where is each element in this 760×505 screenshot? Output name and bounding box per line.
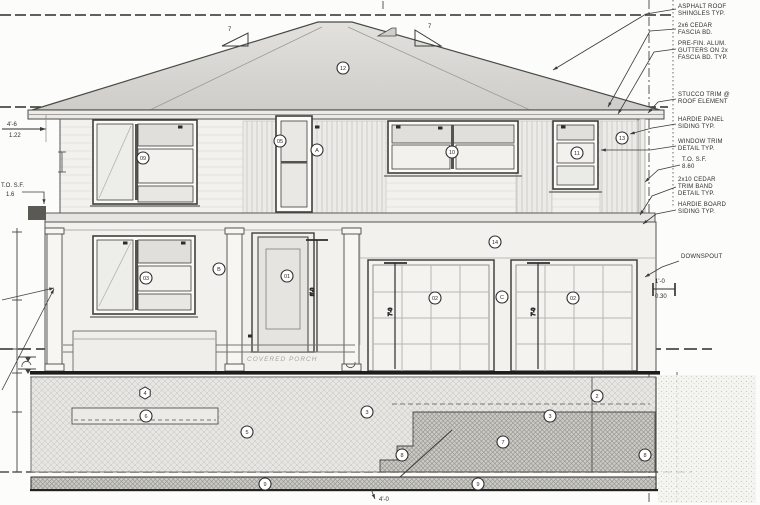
callout-bubble: B	[213, 263, 225, 275]
pane-marker-icon	[438, 127, 443, 130]
garage-dim-label: 7'-0	[531, 308, 537, 316]
callout-label: 09	[140, 156, 146, 162]
earth-hatch	[658, 375, 756, 503]
right-dim-ft: 1'-0	[655, 279, 665, 285]
annotation-note: T.O. S.F.8.60	[682, 157, 707, 170]
annotation-note: STUCCO TRIM @ROOF ELEMENT	[678, 92, 730, 105]
callout-label: B	[217, 267, 221, 273]
callout-label: 12	[340, 66, 346, 72]
callout-label: 14	[492, 240, 498, 246]
overhang-dim-m: 1.22	[9, 133, 21, 139]
callout-bubble: 02	[429, 292, 441, 304]
foundation	[30, 375, 756, 503]
callout-label: 02	[570, 296, 576, 302]
porch-column	[344, 228, 359, 371]
callout-bubble: 05	[274, 135, 286, 147]
bottom-dim-label: 4'-0	[379, 497, 389, 503]
callout-label: 01	[284, 274, 290, 280]
callout-bubble: 14	[489, 236, 501, 248]
callout-bubble: 8	[639, 449, 651, 461]
callout-label: 11	[574, 151, 580, 157]
callout-bubble: 4	[140, 387, 150, 399]
callout-label: 9	[263, 482, 266, 488]
callout-bubble: 03	[140, 272, 152, 284]
callout-bubble: C	[496, 291, 508, 303]
pane-marker-icon	[181, 242, 186, 245]
callout-bubble: 11	[571, 147, 583, 159]
pane-marker-icon	[178, 126, 183, 129]
callout-label: 10	[449, 150, 455, 156]
callout-label: 05	[277, 139, 283, 145]
annotation-note: PRE-FIN. ALUM.GUTTERS ON 2xFASCIA BD. TY…	[678, 41, 728, 61]
window-upper-center	[276, 116, 312, 212]
callout-bubble: 2	[591, 390, 603, 402]
callout-label: 4	[143, 391, 146, 397]
callout-bubble: 8	[396, 449, 408, 461]
overhang-dim-ft: 4'-6	[7, 122, 17, 128]
annotation-note: DOWNSPOUT	[681, 254, 723, 260]
callout-label: 5	[245, 430, 248, 436]
slope-indicator-left-icon	[222, 33, 248, 46]
callout-label: 13	[619, 136, 625, 142]
annotation-note: 2x6 CEDARFASCIA BD.	[678, 23, 713, 36]
left-note-line1: T.O. S.F.	[1, 183, 24, 189]
callout-bubble: 3	[544, 410, 556, 422]
note-leader	[608, 29, 676, 107]
annotation-note: HARDIE BOARDSIDING TYP.	[678, 202, 727, 215]
footing-bottom-line	[30, 489, 658, 491]
siding-panel	[312, 121, 386, 213]
callout-bubble: A	[311, 144, 323, 156]
elevation-sheet: 7 7	[0, 0, 760, 505]
garage-door-right	[511, 260, 637, 371]
left-level-note: T.O. S.F. 1.6	[1, 183, 46, 220]
elevation-drawing: 7 7	[0, 0, 760, 505]
break-curl-icon	[22, 361, 31, 367]
callout-bubble: 10	[446, 146, 458, 158]
entry-door-dim-label: 8'-0	[310, 288, 316, 296]
pane-marker-icon	[248, 335, 253, 338]
slope-label-left: 7	[228, 27, 232, 33]
garage-dim-label: 7'-0	[388, 308, 394, 316]
siding-panel	[243, 121, 276, 213]
callout-bubble: 12	[337, 62, 349, 74]
pane-marker-icon	[396, 126, 401, 129]
callout-label: C	[500, 295, 504, 301]
callout-label: 3	[365, 410, 368, 416]
entry-door	[250, 233, 316, 352]
siding-panel	[516, 121, 552, 213]
right-dim-m: 0.30	[655, 294, 667, 300]
porch-label: COVERED PORCH	[247, 356, 317, 363]
callout-label: 3	[548, 414, 551, 420]
porch-column	[227, 228, 242, 371]
callout-bubble: 09	[137, 152, 149, 164]
annotation-note: WINDOW TRIMDETAIL TYP.	[678, 139, 723, 152]
callout-label: 03	[143, 276, 149, 282]
callout-bubble: 9	[472, 478, 484, 490]
callout-label: 9	[476, 482, 479, 488]
callout-label: 2	[595, 394, 598, 400]
floor-trim-band	[45, 213, 655, 222]
pane-marker-icon	[561, 126, 566, 129]
note-leader	[553, 9, 676, 70]
left-note-line2: 1.6	[6, 192, 15, 198]
callout-label: 8	[400, 453, 403, 459]
slope-label-right: 7	[428, 24, 432, 30]
callout-bubble: 7	[497, 436, 509, 448]
callout-bubble: 01	[281, 270, 293, 282]
annotation-note: HARDIE PANELSIDING TYP.	[678, 117, 724, 130]
garage-door-left	[368, 260, 494, 371]
porch-column	[47, 228, 62, 371]
note-leader	[645, 165, 680, 182]
callout-bubble: 5	[241, 426, 253, 438]
callout-label: A	[315, 148, 319, 154]
floor-heavy-line	[30, 371, 660, 375]
callout-bubble: 02	[567, 292, 579, 304]
callout-bubble: 13	[616, 132, 628, 144]
rim-joist-section	[28, 206, 46, 220]
callout-label: 8	[643, 453, 646, 459]
garage-slab-section	[380, 412, 655, 472]
callout-label: 6	[144, 414, 147, 420]
callout-bubble: 6	[140, 410, 152, 422]
main-floor: 8'-0 7'-0 7'-0	[22, 222, 656, 373]
annotation-note: ASPHALT ROOFSHINGLES TYP.	[678, 4, 726, 17]
strip-footing	[31, 477, 656, 490]
annotation-note: 2x10 CEDARTRIM BANDDETAIL TYP.	[678, 177, 716, 197]
callout-label: 7	[501, 440, 504, 446]
callout-label: 02	[432, 296, 438, 302]
callout-bubble: 9	[259, 478, 271, 490]
pane-marker-icon	[315, 126, 320, 129]
pane-marker-icon	[123, 242, 128, 245]
callout-bubble: 3	[361, 406, 373, 418]
